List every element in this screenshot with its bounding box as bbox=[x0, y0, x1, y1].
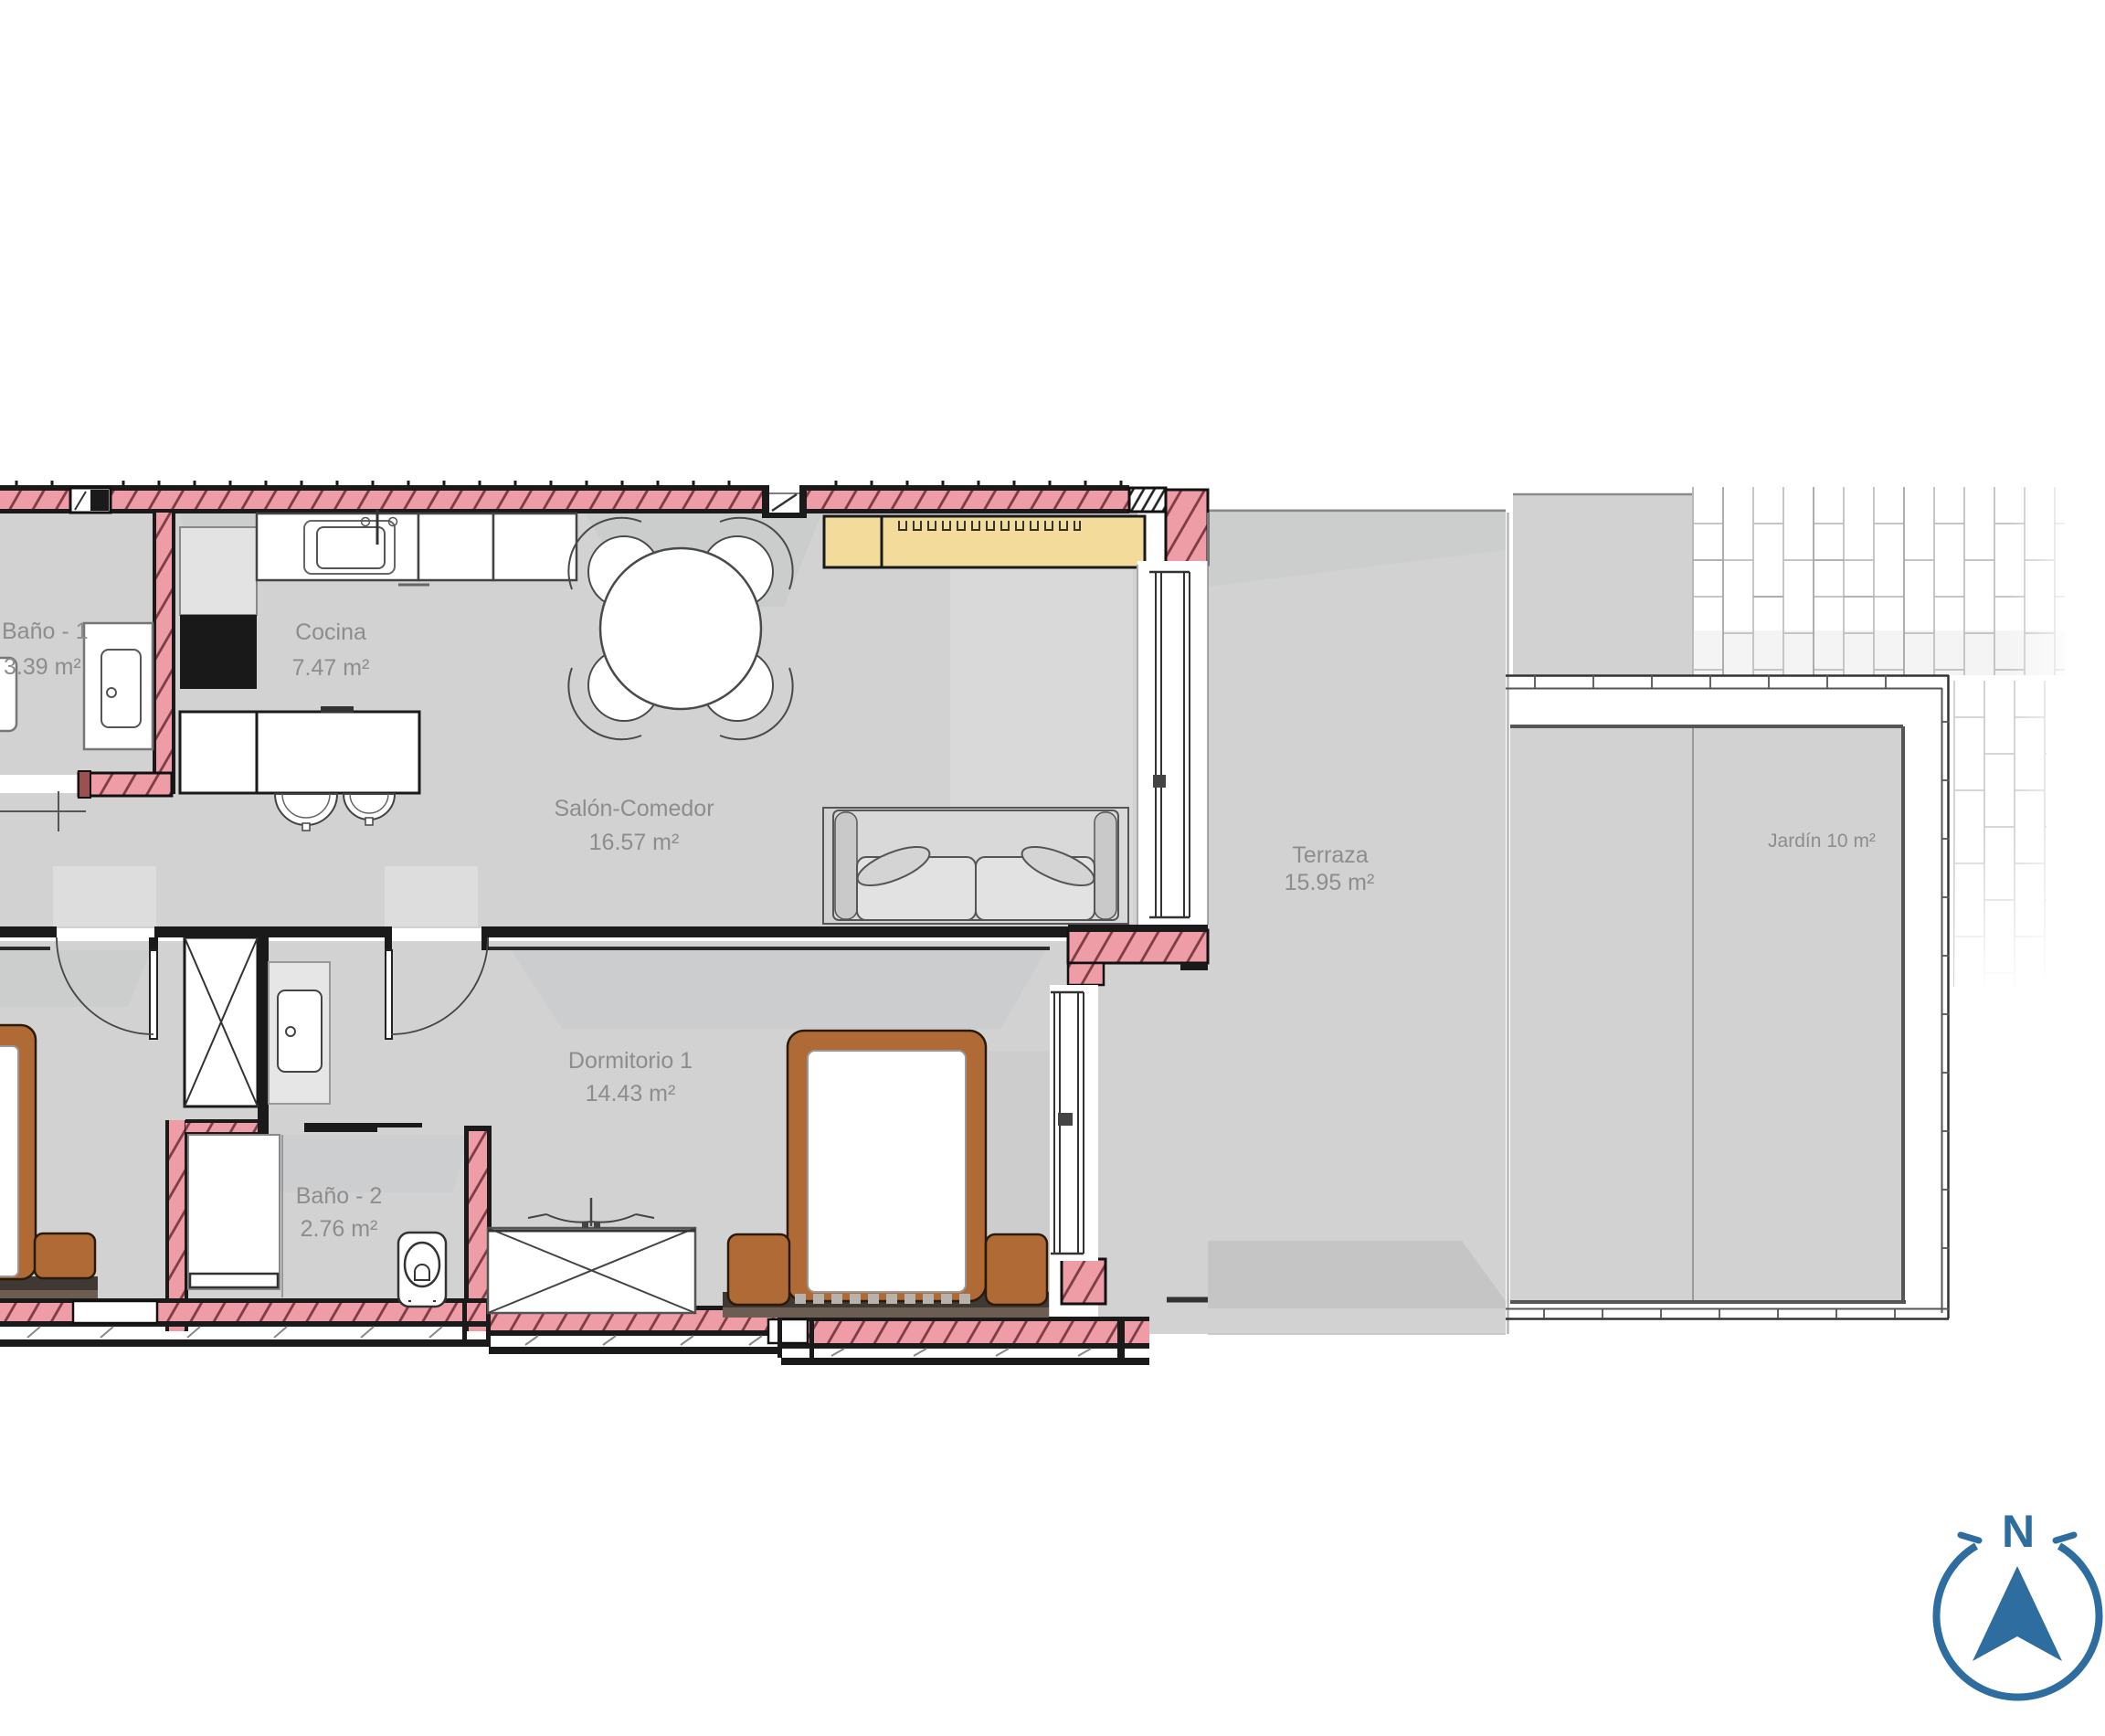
svg-text:Salón-Comedor: Salón-Comedor bbox=[554, 796, 714, 821]
svg-text:2.76 m²: 2.76 m² bbox=[301, 1216, 378, 1242]
svg-text:14.43 m²: 14.43 m² bbox=[586, 1081, 676, 1106]
svg-text:Cocina: Cocina bbox=[295, 619, 366, 645]
svg-text:16.57 m²: 16.57 m² bbox=[589, 830, 680, 855]
svg-text:Dormitorio 1: Dormitorio 1 bbox=[568, 1048, 693, 1074]
svg-text:Terraza: Terraza bbox=[1292, 842, 1368, 868]
svg-text:15.95 m²: 15.95 m² bbox=[1285, 870, 1375, 895]
svg-text:3.39 m²: 3.39 m² bbox=[4, 654, 81, 680]
svg-text:Jardín 10 m²: Jardín 10 m² bbox=[1768, 831, 1876, 852]
svg-text:Baño - 2: Baño - 2 bbox=[296, 1183, 383, 1209]
svg-text:7.47 m²: 7.47 m² bbox=[292, 655, 370, 681]
svg-text:N: N bbox=[2002, 1506, 2035, 1557]
svg-text:Baño - 1: Baño - 1 bbox=[2, 619, 89, 644]
